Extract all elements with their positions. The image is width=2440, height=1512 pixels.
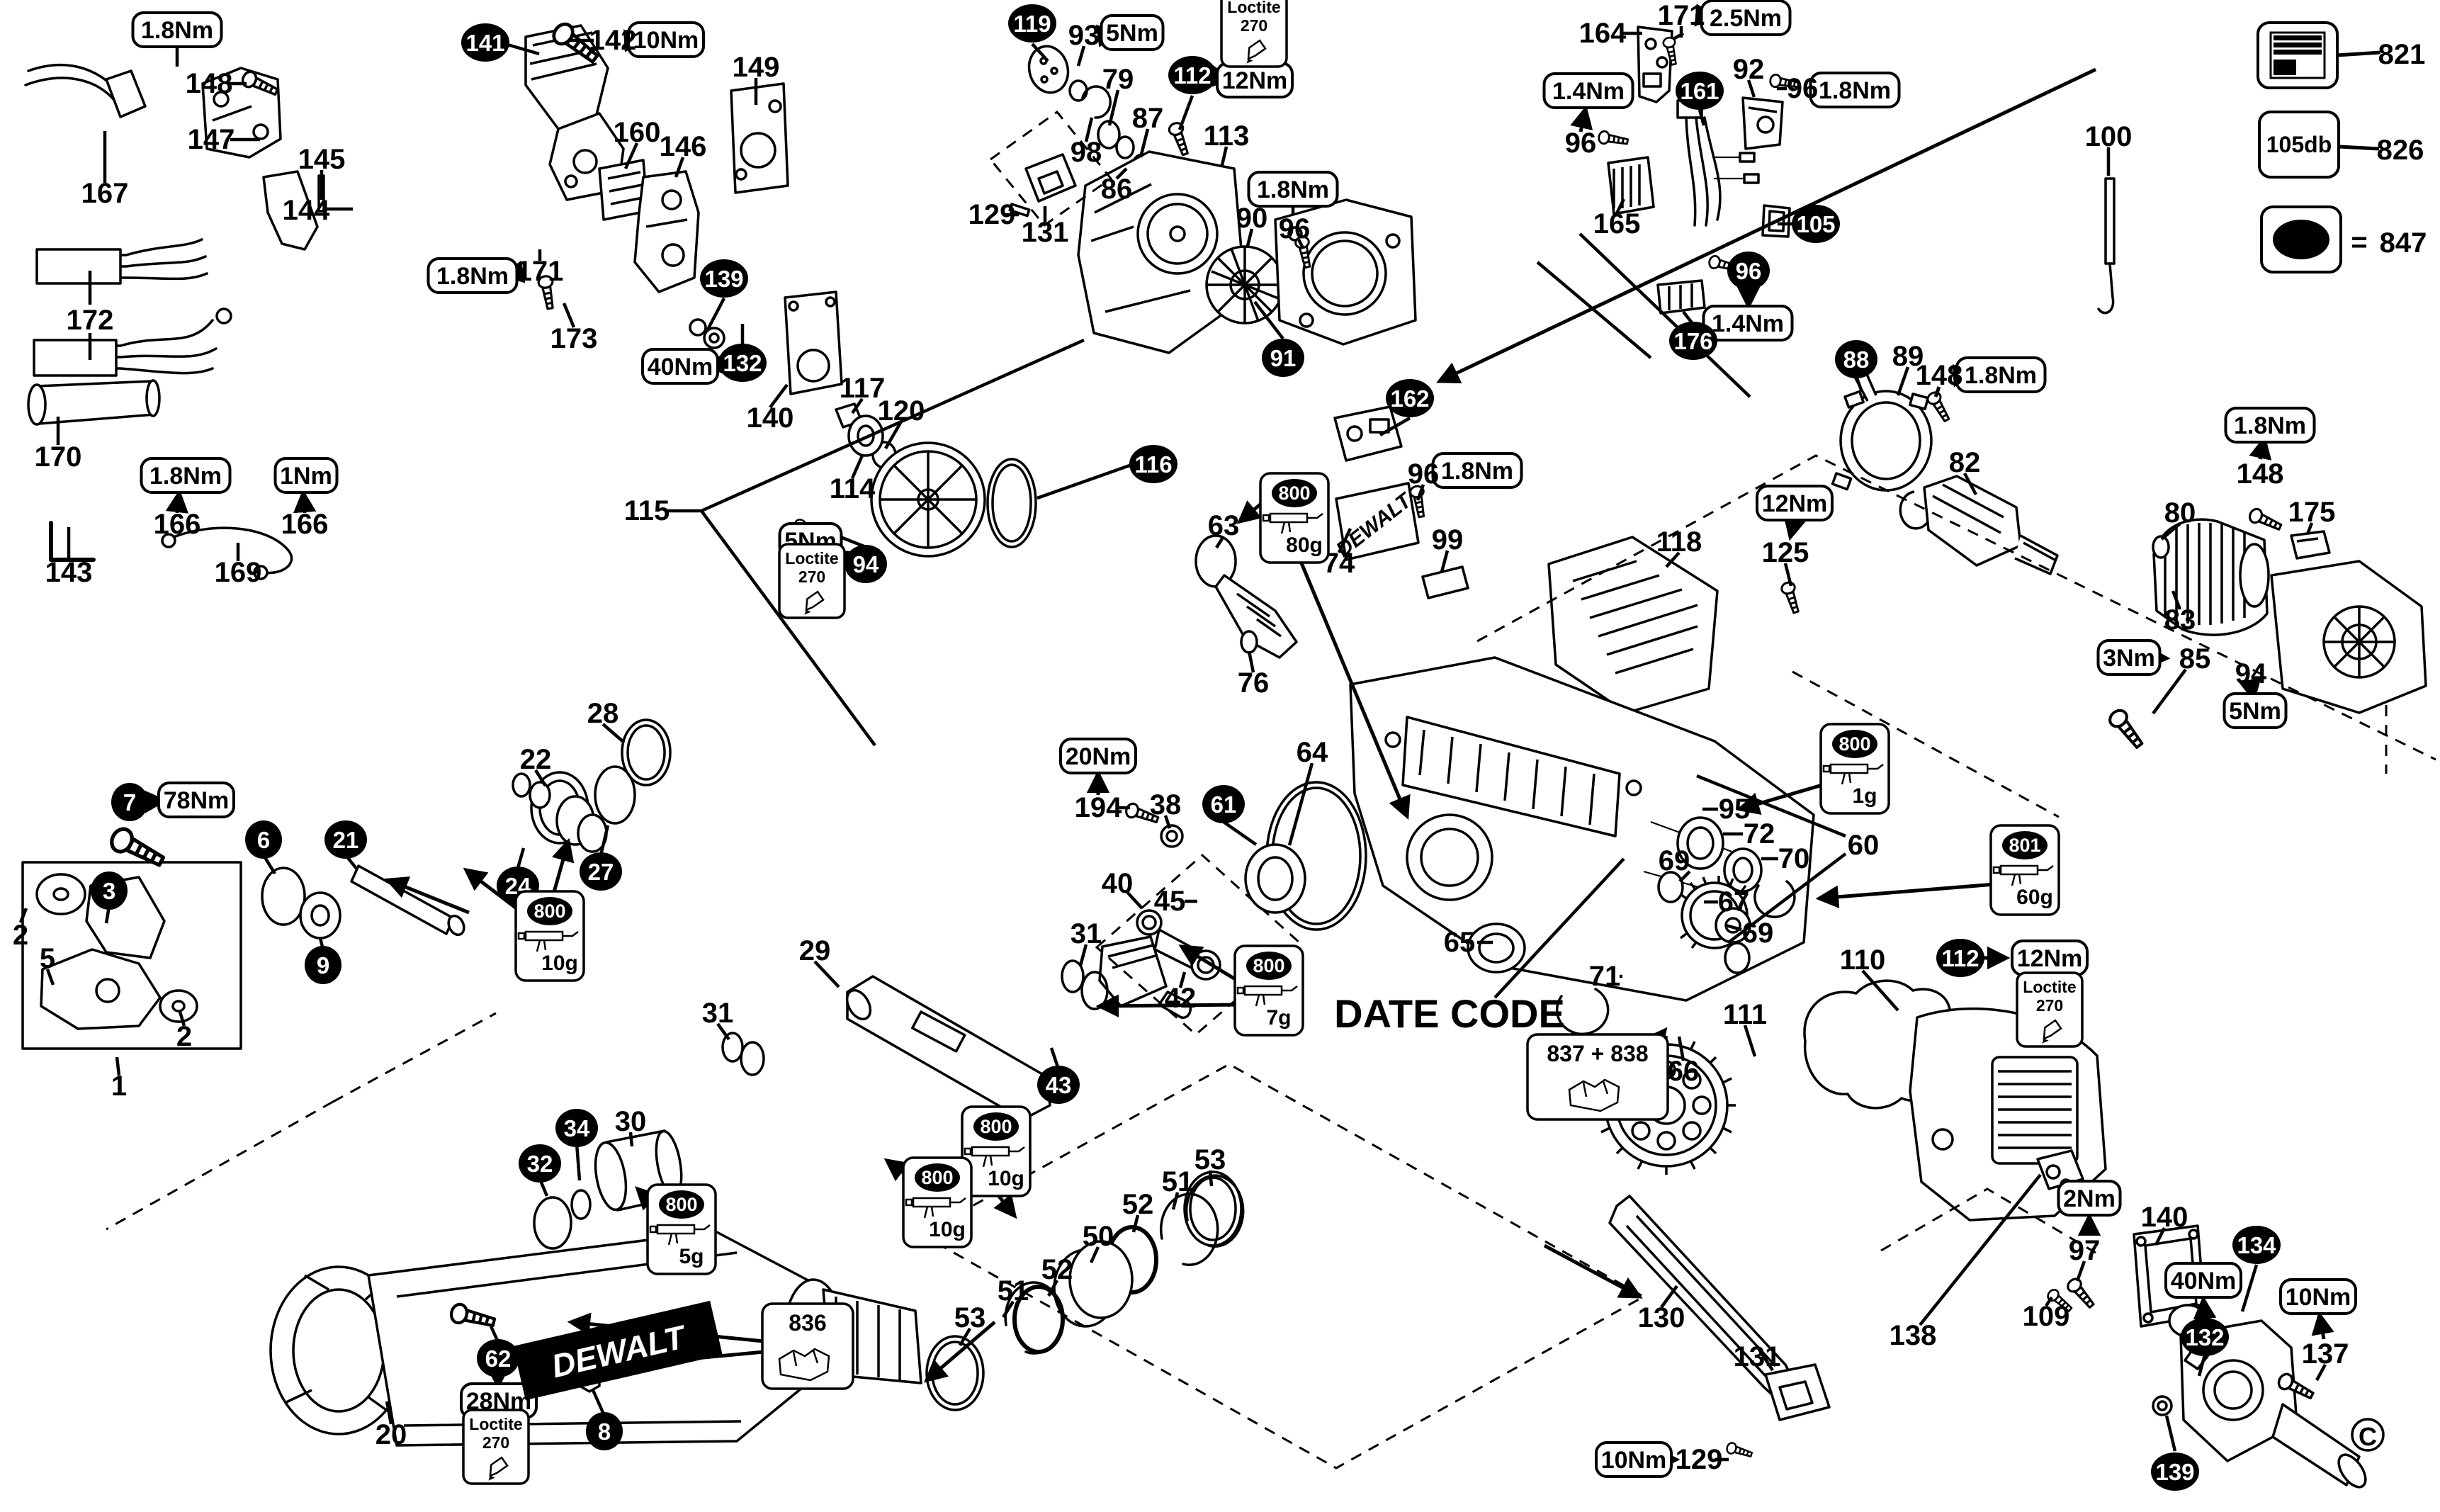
part-pipe-29-sketch [842, 976, 1050, 1119]
part-lead-wire-sketch [26, 65, 145, 117]
svg-text:120: 120 [878, 395, 925, 427]
svg-text:27: 27 [588, 859, 614, 885]
part-number-bubble: 34 [555, 1109, 598, 1147]
svg-text:62: 62 [485, 1345, 512, 1372]
torque-label: 40Nm [2166, 1263, 2241, 1297]
svg-text:270: 270 [2036, 996, 2063, 1015]
svg-text:145: 145 [298, 144, 346, 175]
part-assembly-1-sketch [23, 862, 241, 1049]
diagram-canvas: 1.8Nm10Nm5Nm12Nm2.5Nm1.4Nm1.8Nm1.8Nm40Nm… [0, 0, 2440, 1508]
part-number: 144 [283, 195, 330, 226]
part-number: 114 [830, 473, 876, 504]
svg-text:171: 171 [516, 256, 564, 287]
svg-text:139: 139 [2155, 1459, 2194, 1485]
part-number: 171 [1658, 0, 1705, 31]
part-terminal-176-sketch [1658, 281, 1705, 313]
svg-text:50: 50 [1083, 1221, 1114, 1252]
svg-text:800: 800 [1278, 483, 1310, 504]
svg-text:140: 140 [2141, 1202, 2188, 1233]
part-washer-9-sketch [300, 893, 340, 938]
part-box-131-sketch [1010, 154, 1075, 216]
part-number: 148 [2237, 458, 2284, 490]
part-ring-stack-sketch [927, 1172, 1243, 1410]
torque-label: 5Nm [1102, 16, 1163, 50]
torque-label: 1.4Nm [1544, 74, 1633, 108]
svg-text:22: 22 [520, 744, 552, 775]
torque-label: 20Nm [1061, 739, 1136, 773]
part-number: 82 [1949, 447, 1981, 478]
part-number: 86 [1101, 174, 1133, 205]
clip-note: 836 [762, 1304, 853, 1389]
svg-text:172: 172 [67, 305, 114, 336]
torque-label: 1.8Nm [142, 458, 230, 492]
part-number: 110 [1840, 944, 1886, 976]
part-number: 129 [1676, 1444, 1723, 1475]
svg-text:170: 170 [35, 441, 82, 473]
svg-text:6: 6 [257, 827, 270, 853]
svg-text:2: 2 [176, 1021, 192, 1052]
svg-text:83: 83 [2164, 604, 2196, 636]
svg-text:137: 137 [2302, 1338, 2349, 1370]
svg-text:111: 111 [1723, 999, 1767, 1030]
svg-text:1.4Nm: 1.4Nm [1712, 310, 1784, 337]
part-number-bubble: 119 [1008, 4, 1056, 43]
part-ring-32-sketch [534, 1197, 571, 1248]
part-oring-6-sketch [262, 868, 305, 925]
torque-label: 12Nm [2012, 941, 2087, 975]
svg-text:7g: 7g [1266, 1006, 1291, 1029]
part-oring-34-sketch [572, 1190, 590, 1219]
part-number-bubble: 161 [1676, 72, 1724, 110]
part-ring-28-sketch [622, 720, 670, 785]
part-number: 131 [1022, 217, 1069, 248]
torque-label: 10Nm [1596, 1443, 1671, 1477]
part-number: 140 [747, 402, 794, 434]
svg-text:29: 29 [799, 935, 831, 966]
torque-label: 40Nm [643, 349, 718, 383]
part-number: 147 [188, 124, 235, 155]
part-number-bubble: 96 [1727, 252, 1770, 290]
svg-text:96: 96 [1787, 73, 1819, 104]
part-number: 125 [1762, 537, 1809, 568]
svg-text:837 + 838: 837 + 838 [1547, 1041, 1648, 1066]
part-number: 111 [1723, 999, 1767, 1030]
svg-text:Loctite: Loctite [2023, 978, 2076, 996]
svg-text:847: 847 [2380, 227, 2427, 259]
svg-text:139: 139 [704, 266, 743, 292]
part-sleeve-170-sketch [28, 380, 159, 424]
svg-text:146: 146 [660, 131, 707, 162]
torque-label: 2.5Nm [1702, 1, 1790, 35]
svg-text:3Nm: 3Nm [2103, 645, 2155, 672]
part-washers-139-sketch [690, 320, 724, 348]
svg-text:148: 148 [186, 68, 233, 99]
svg-text:161: 161 [1680, 78, 1719, 104]
part-number: 53 [954, 1302, 986, 1333]
part-number: 145 [298, 144, 346, 175]
part-number: 194 [1075, 792, 1122, 823]
svg-text:800: 800 [921, 1167, 953, 1188]
svg-text:99: 99 [1432, 524, 1464, 555]
part-number-bubble: 162 [1386, 379, 1434, 417]
part-oring-80-sketch [2153, 536, 2169, 558]
svg-text:61: 61 [1211, 791, 1237, 818]
date-code-text: DATE CODE [1334, 991, 1565, 1036]
part-number: 63 [1208, 510, 1240, 541]
svg-text:38: 38 [1150, 789, 1182, 820]
svg-text:94: 94 [2235, 658, 2267, 689]
svg-text:1.8Nm: 1.8Nm [436, 263, 509, 290]
part-number: 167 [81, 178, 129, 209]
svg-text:86: 86 [1101, 174, 1133, 205]
svg-text:31: 31 [1071, 918, 1102, 949]
svg-text:173: 173 [550, 323, 598, 354]
torque-label: 1.8Nm [133, 13, 222, 47]
svg-text:51: 51 [998, 1275, 1029, 1307]
grease-note: 8007g [1235, 946, 1303, 1035]
part-number-bubble: 88 [1835, 340, 1877, 378]
part-number: 131 [1734, 1341, 1781, 1372]
part-number: 65 [1444, 927, 1476, 958]
part-plate-149-sketch [731, 84, 788, 193]
part-number-bubble: 139 [2151, 1452, 2199, 1491]
part-number: 45 [1154, 886, 1186, 917]
svg-text:96: 96 [1736, 258, 1762, 284]
svg-text:800: 800 [980, 1116, 1012, 1137]
svg-text:12Nm: 12Nm [1222, 67, 1288, 94]
svg-text:112: 112 [1173, 62, 1211, 89]
part-bearing-64-sketch [1246, 845, 1305, 913]
svg-text:132: 132 [723, 350, 762, 376]
svg-text:142: 142 [589, 25, 637, 56]
part-number: 66 [1668, 1056, 1700, 1087]
svg-text:88: 88 [1843, 346, 1870, 373]
part-number: 129 [968, 199, 1016, 230]
part-number: 76 [1238, 667, 1270, 699]
grease-note: 8001g [1821, 724, 1889, 813]
part-shaft-21-sketch [351, 866, 467, 937]
part-number: 71 [1589, 961, 1621, 992]
torque-label: 1.4Nm [1704, 306, 1792, 340]
loctite-note: Loctite270 [463, 1410, 529, 1484]
svg-text:119: 119 [1013, 11, 1051, 37]
svg-text:28: 28 [587, 698, 619, 729]
svg-text:21: 21 [333, 827, 359, 853]
part-number-bubble: 139 [700, 259, 748, 298]
svg-text:20: 20 [375, 1419, 407, 1450]
svg-text:270: 270 [798, 568, 825, 586]
svg-text:78Nm: 78Nm [164, 787, 230, 814]
part-number: 28 [587, 698, 619, 729]
svg-text:20Nm: 20Nm [1066, 743, 1131, 770]
svg-text:53: 53 [1194, 1144, 1226, 1175]
grease-legend-box: = [2261, 207, 2368, 272]
part-number: 87 [1132, 103, 1164, 134]
part-box-131b-sketch [1766, 1365, 1829, 1420]
part-washer-38-sketch [1161, 825, 1182, 847]
svg-text:40: 40 [1102, 868, 1134, 899]
svg-text:82: 82 [1949, 447, 1981, 478]
svg-text:65: 65 [1444, 927, 1476, 958]
nameplate-legend-box [2258, 23, 2380, 88]
svg-text:129: 129 [1676, 1444, 1723, 1475]
svg-text:2.5Nm: 2.5Nm [1710, 5, 1782, 32]
part-number-bubble: 9 [305, 946, 341, 984]
torque-label: 12Nm [1757, 486, 1832, 520]
part-number-bubble: 105 [1792, 205, 1840, 243]
part-number: 60 [1848, 830, 1880, 861]
svg-text:93: 93 [1068, 20, 1100, 51]
torque-label: 1.8Nm [1433, 453, 1522, 487]
part-number: 166 [154, 509, 201, 540]
svg-text:96: 96 [1565, 128, 1597, 159]
svg-text:140: 140 [747, 402, 794, 434]
part-housing-146-sketch [635, 171, 699, 292]
part-number: 64 [1297, 737, 1328, 768]
part-armature-82-sketch [1900, 476, 2057, 574]
svg-text:105: 105 [1796, 211, 1835, 237]
svg-text:52: 52 [1041, 1254, 1073, 1285]
part-number-bubble: 94 [845, 545, 887, 583]
svg-text:72: 72 [1744, 818, 1775, 850]
svg-text:1.8Nm: 1.8Nm [1965, 362, 2037, 389]
part-number: 137 [2302, 1338, 2349, 1370]
part-block-175-sketch [2291, 531, 2329, 558]
svg-text:144: 144 [283, 195, 330, 226]
part-number: 173 [550, 323, 598, 354]
svg-text:79: 79 [1102, 64, 1134, 95]
torque-label: 1.8Nm [429, 259, 517, 293]
svg-text:826: 826 [2377, 135, 2424, 166]
part-antenna-100-sketch [2099, 179, 2114, 313]
exploded-parts-diagram: 1.8Nm10Nm5Nm12Nm2.5Nm1.4Nm1.8Nm1.8Nm40Nm… [0, 0, 2440, 1508]
torque-label: 78Nm [159, 783, 234, 817]
svg-text:96: 96 [1279, 213, 1311, 244]
part-number: 140 [2141, 1202, 2188, 1233]
part-number-bubble: 141 [461, 23, 509, 62]
svg-text:80g: 80g [1286, 534, 1323, 557]
part-number: 99 [1432, 524, 1464, 555]
part-number: 40 [1102, 868, 1134, 899]
svg-text:118: 118 [1656, 526, 1702, 558]
loctite-note: Loctite270 [779, 544, 845, 618]
svg-text:12Nm: 12Nm [1762, 490, 1828, 517]
part-number-bubble: 61 [1202, 785, 1245, 823]
svg-text:1g: 1g [1852, 784, 1877, 808]
svg-text:69: 69 [1742, 918, 1774, 949]
svg-text:98: 98 [1071, 137, 1102, 168]
part-brush-plate-165-sketch [1608, 157, 1654, 214]
part-number: 31 [1071, 918, 1102, 949]
part-number: 175 [2288, 497, 2336, 528]
svg-text:141: 141 [465, 30, 504, 56]
svg-text:113: 113 [1204, 120, 1250, 152]
svg-text:Loctite: Loctite [785, 549, 838, 568]
part-number-bubble: 134 [2232, 1226, 2281, 1264]
svg-text:169: 169 [215, 557, 262, 588]
part-number: 50 [1083, 1221, 1114, 1252]
svg-text:821: 821 [2378, 39, 2426, 70]
svg-text:138: 138 [1890, 1320, 1937, 1351]
part-number: 1 [111, 1071, 127, 1102]
svg-text:1.8Nm: 1.8Nm [149, 463, 222, 490]
grease-note: 80010g [903, 1158, 971, 1247]
part-number-bubble: 21 [324, 820, 367, 859]
svg-text:70: 70 [1778, 843, 1810, 874]
part-number: 130 [1638, 1302, 1685, 1333]
part-number: 52 [1122, 1189, 1154, 1220]
svg-text:149: 149 [733, 52, 780, 83]
svg-text:=: = [2351, 227, 2367, 258]
svg-text:63: 63 [1208, 510, 1240, 541]
svg-text:1.8Nm: 1.8Nm [1257, 176, 1329, 203]
part-number: 149 [733, 52, 780, 83]
svg-text:92: 92 [1733, 54, 1765, 85]
noise-legend-box: 105db [2259, 112, 2379, 177]
svg-text:Loctite: Loctite [1227, 0, 1280, 16]
part-number: 96 [1565, 128, 1597, 159]
part-number: 5 [40, 943, 55, 974]
svg-text:94: 94 [853, 551, 879, 577]
svg-text:270: 270 [482, 1433, 509, 1452]
svg-text:105db: 105db [2266, 132, 2332, 157]
svg-text:166: 166 [281, 509, 329, 540]
part-number: 148 [1916, 360, 1963, 391]
part-number: 138 [1890, 1320, 1937, 1351]
svg-text:3: 3 [103, 878, 115, 904]
svg-text:71: 71 [1589, 961, 1621, 992]
part-number: 142 [589, 25, 637, 56]
svg-text:69: 69 [1659, 845, 1690, 876]
part-number-bubble: 112 [1936, 939, 1984, 977]
svg-text:2: 2 [13, 920, 28, 951]
svg-text:801: 801 [2009, 835, 2040, 856]
svg-text:171: 171 [1658, 0, 1705, 31]
svg-text:10g: 10g [929, 1218, 966, 1241]
part-wheel-116-sketch [871, 443, 1036, 556]
torque-label: 1.8Nm [1811, 73, 1899, 107]
grease-note: 80080g [1260, 473, 1328, 563]
part-number-bubble: 32 [519, 1144, 561, 1183]
part-number: 31 [702, 998, 734, 1029]
part-number: 42 [1165, 983, 1197, 1014]
svg-text:1: 1 [111, 1071, 127, 1102]
svg-text:10g: 10g [988, 1167, 1024, 1190]
part-number: 113 [1204, 120, 1250, 152]
svg-text:5: 5 [40, 943, 55, 974]
part-number: 69 [1742, 918, 1774, 949]
part-number: 52 [1041, 1254, 1073, 1285]
part-number: 30 [615, 1106, 647, 1137]
svg-text:800: 800 [533, 901, 565, 922]
part-number: 53 [1194, 1144, 1226, 1175]
svg-text:112: 112 [1941, 945, 1979, 971]
svg-text:40Nm: 40Nm [648, 354, 713, 380]
svg-text:162: 162 [1390, 385, 1429, 412]
torque-label: 1Nm [276, 458, 337, 492]
svg-text:96: 96 [1408, 458, 1440, 490]
svg-text:52: 52 [1122, 1189, 1154, 1220]
part-number-bubble: 6 [245, 820, 282, 859]
part-number: 115 [624, 495, 670, 526]
part-bearing-22-sketch [513, 772, 606, 852]
part-number: 70 [1778, 843, 1810, 874]
svg-text:12Nm: 12Nm [2017, 945, 2083, 972]
part-number: 120 [878, 395, 925, 427]
svg-text:115: 115 [624, 495, 670, 526]
svg-text:9: 9 [317, 952, 329, 978]
part-number-bubble: 112 [1168, 56, 1216, 94]
svg-text:125: 125 [1762, 537, 1809, 568]
part-number: 51 [998, 1275, 1029, 1307]
svg-text:31: 31 [702, 998, 734, 1029]
svg-text:10Nm: 10Nm [1601, 1447, 1667, 1474]
part-number: 97 [2069, 1235, 2101, 1266]
svg-text:129: 129 [968, 199, 1016, 230]
part-number: 118 [1656, 526, 1702, 558]
part-washer-139b-sketch [2153, 1397, 2171, 1415]
grease-note: 80010g [516, 891, 584, 981]
svg-text:60: 60 [1848, 830, 1880, 861]
svg-text:85: 85 [2179, 643, 2211, 675]
part-number: 96 [1787, 73, 1819, 104]
svg-text:53: 53 [954, 1302, 986, 1333]
torque-label: 5Nm [2225, 694, 2286, 728]
svg-text:1.4Nm: 1.4Nm [1552, 78, 1625, 105]
svg-text:132: 132 [2185, 1324, 2224, 1350]
svg-text:C: C [2359, 1422, 2377, 1451]
svg-text:51: 51 [1162, 1166, 1194, 1197]
part-number: 29 [799, 935, 831, 966]
part-number: 83 [2164, 604, 2196, 636]
svg-text:97: 97 [2069, 1235, 2101, 1266]
clip-note: 837 + 838 [1527, 1034, 1668, 1119]
svg-text:Loctite: Loctite [469, 1415, 522, 1433]
svg-text:166: 166 [154, 509, 201, 540]
svg-text:66: 66 [1668, 1056, 1700, 1087]
svg-text:76: 76 [1238, 667, 1270, 699]
svg-text:109: 109 [2023, 1301, 2070, 1332]
part-number-bubble: 176 [1669, 322, 1717, 360]
loctite-note: Loctite270 [2017, 973, 2082, 1046]
svg-text:194: 194 [1075, 792, 1122, 823]
part-number: 172 [67, 305, 114, 336]
part-number: 51 [1162, 1166, 1194, 1197]
part-number: 164 [1579, 18, 1627, 49]
svg-text:148: 148 [2237, 458, 2284, 490]
svg-text:40Nm: 40Nm [2171, 1268, 2237, 1294]
svg-text:10Nm: 10Nm [2286, 1284, 2351, 1311]
svg-text:836: 836 [789, 1310, 826, 1336]
svg-text:114: 114 [830, 473, 876, 504]
svg-text:165: 165 [1593, 208, 1641, 239]
copyright-mark: C [2352, 1419, 2383, 1451]
part-number: 2 [176, 1021, 192, 1052]
svg-text:1.8Nm: 1.8Nm [2234, 412, 2306, 439]
svg-text:176: 176 [1673, 328, 1712, 354]
part-number: 94 [2235, 658, 2267, 689]
svg-text:134: 134 [2237, 1232, 2276, 1258]
part-number: 93 [1068, 20, 1100, 51]
svg-text:7: 7 [123, 789, 136, 816]
svg-text:131: 131 [1022, 217, 1069, 248]
svg-text:5Nm: 5Nm [2229, 698, 2281, 725]
part-number-bubble: 91 [1262, 339, 1304, 377]
svg-text:30: 30 [615, 1106, 647, 1137]
part-bracket-162-sketch [1335, 407, 1401, 461]
svg-text:64: 64 [1297, 737, 1328, 768]
part-number-bubble: 7 [111, 783, 148, 821]
